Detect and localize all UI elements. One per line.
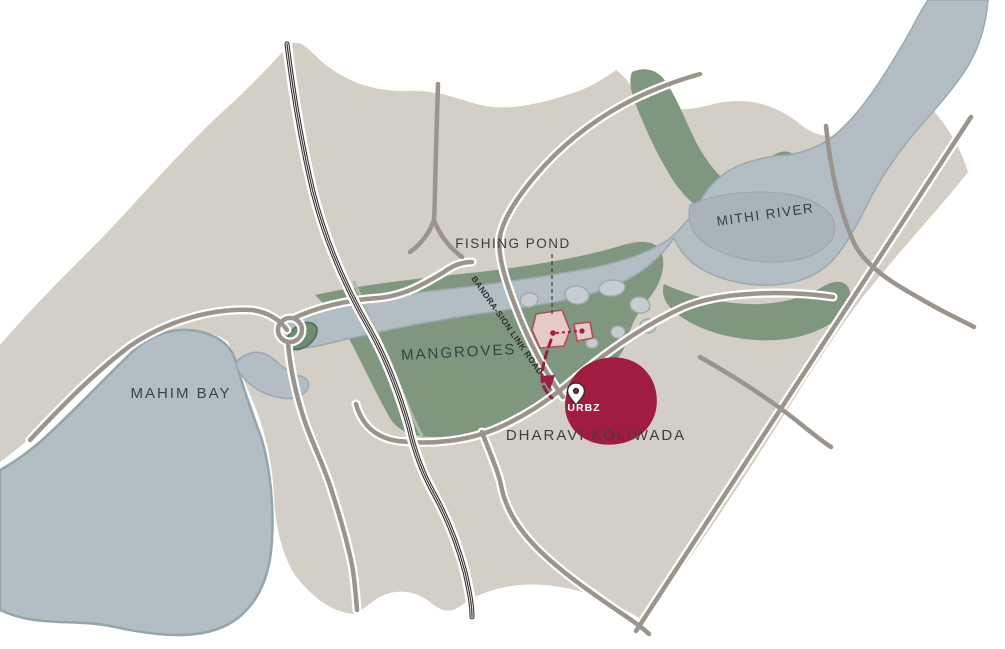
dharavi-koliwada-label: DHARAVI KOLIWADA	[506, 427, 686, 444]
fishing-pond-label: FISHING POND	[455, 236, 571, 251]
urbz-label: URBZ	[567, 402, 600, 414]
dharavi-map: FISHING POND MANGROVES MAHIM BAY MITHI R…	[0, 0, 1005, 649]
map-canvas: FISHING POND MANGROVES MAHIM BAY MITHI R…	[0, 0, 1005, 649]
mahim-bay-label: MAHIM BAY	[130, 385, 231, 402]
